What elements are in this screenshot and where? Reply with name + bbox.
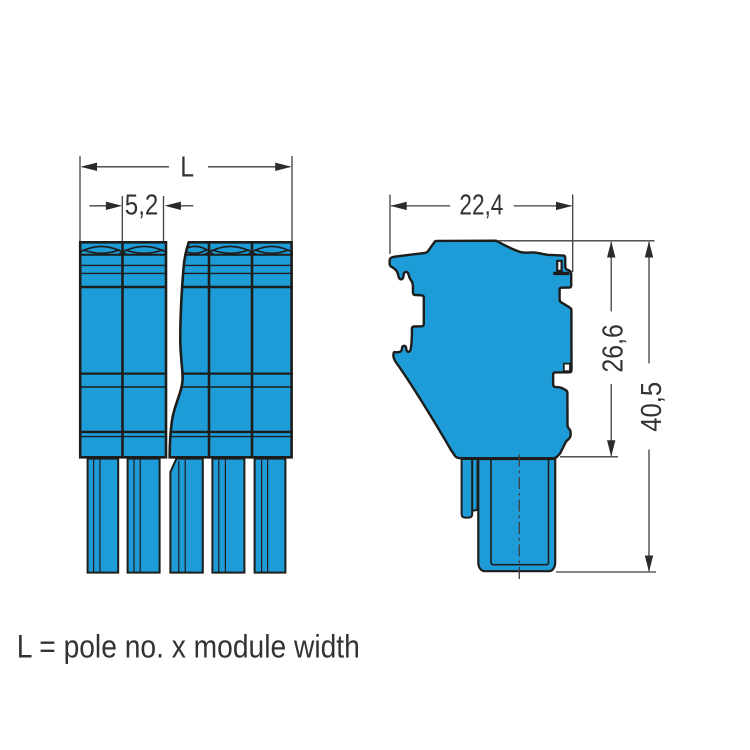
svg-text:L: L <box>180 152 194 184</box>
svg-text:22,4: 22,4 <box>459 189 503 221</box>
svg-text:40,5: 40,5 <box>636 382 668 432</box>
svg-text:L = pole no. x module width: L = pole no. x module width <box>17 629 360 665</box>
svg-text:5,2: 5,2 <box>125 189 159 221</box>
svg-text:26,6: 26,6 <box>598 324 630 373</box>
